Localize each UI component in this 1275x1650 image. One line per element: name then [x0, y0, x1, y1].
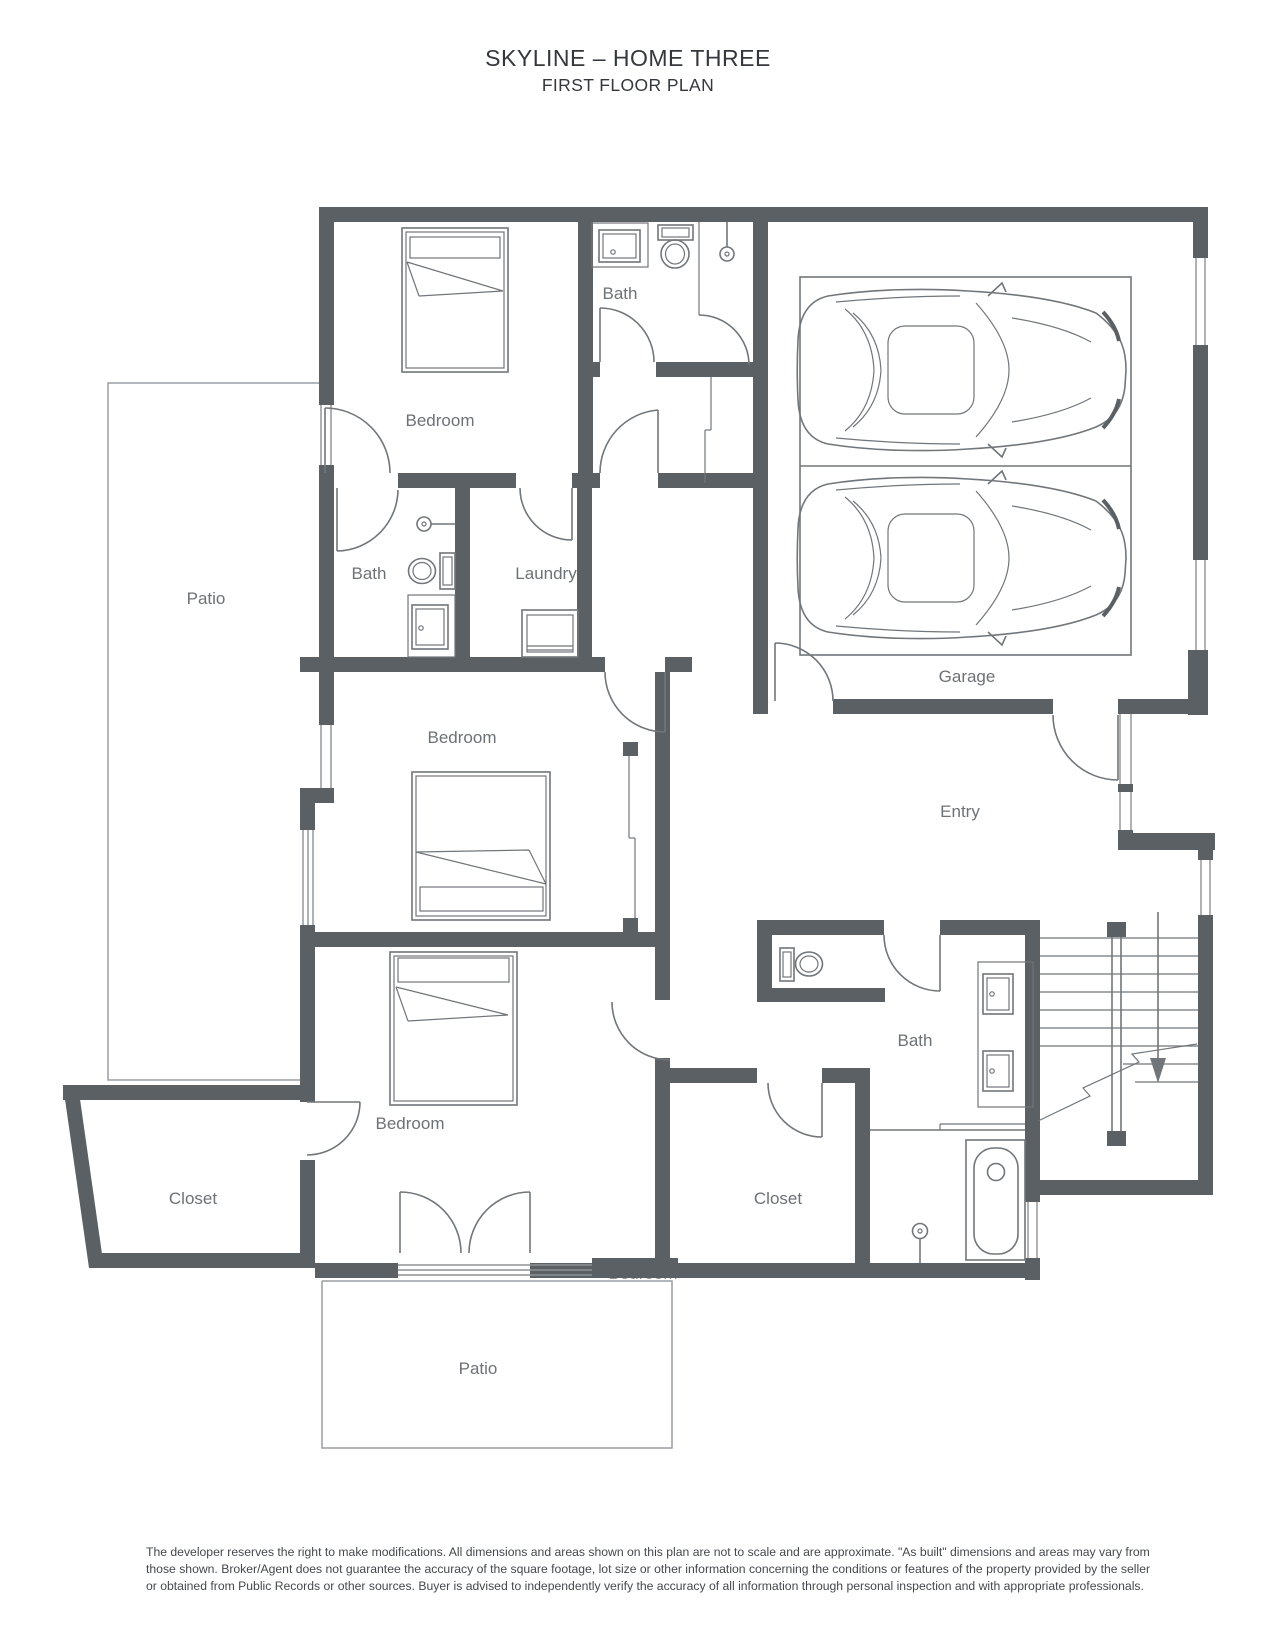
door-arc — [600, 308, 654, 362]
door-arc — [600, 410, 658, 473]
window-icon — [1193, 560, 1208, 650]
sink-icon — [978, 962, 1033, 1107]
door-arc — [337, 488, 398, 551]
garage-stalls — [800, 277, 1131, 655]
door-arc — [325, 408, 390, 473]
room-label-bath-lower: Bath — [898, 1031, 933, 1050]
sink-icon — [408, 595, 455, 657]
closet-slider-icon — [623, 742, 638, 932]
window-icon — [1025, 1202, 1040, 1258]
shower-door-arc — [699, 222, 749, 365]
floor-plan-page: SKYLINE – HOME THREE FIRST FLOOR PLAN Be… — [0, 0, 1275, 1650]
washer-icon — [522, 610, 578, 657]
room-label-patio-bottom: Patio — [459, 1359, 498, 1378]
room-label-entry: Entry — [940, 802, 980, 821]
room-label-bedroom-middle: Bedroom — [428, 728, 497, 747]
bed-icon — [402, 228, 508, 372]
window-icon — [319, 725, 334, 788]
room-label-bath-top: Bath — [603, 284, 638, 303]
door-arc — [307, 1102, 360, 1155]
room-label-closet-left: Closet — [169, 1189, 217, 1208]
bed-icon — [412, 772, 550, 920]
door-arc — [612, 1002, 670, 1060]
disclaimer-line-3: or obtained from Public Records or other… — [146, 1579, 1144, 1593]
patio-left-outline — [108, 383, 322, 1080]
room-label-bath-middle: Bath — [352, 564, 387, 583]
bathtub-icon — [966, 1140, 1025, 1260]
sliding-door-icon — [303, 830, 313, 925]
door-arc — [768, 1083, 822, 1137]
disclaimer-line-2: those shown. Broker/Agent does not guara… — [146, 1562, 1150, 1576]
french-door-icon — [400, 1192, 530, 1253]
front-door-arc — [1053, 715, 1118, 780]
entry-sidelight-icon — [1120, 714, 1131, 830]
plan-title: SKYLINE – HOME THREE — [485, 45, 771, 71]
shower-head-icon — [417, 517, 455, 531]
room-label-closet-right: Closet — [754, 1189, 802, 1208]
room-label-bedroom-lower: Bedroom — [376, 1114, 445, 1133]
sink-icon — [592, 223, 648, 267]
floor-plan-drawing: SKYLINE – HOME THREE FIRST FLOOR PLAN Be… — [0, 0, 1275, 1650]
shower-head-icon — [720, 222, 734, 261]
room-label-laundry: Laundry — [515, 564, 577, 583]
room-label-patio-left: Patio — [187, 589, 226, 608]
door-arc — [775, 643, 833, 701]
disclaimer: The developer reserves the right to make… — [146, 1545, 1150, 1593]
toilet-icon — [780, 948, 823, 981]
room-label-bedroom-top: Bedroom — [406, 411, 475, 430]
window-icon — [319, 405, 334, 465]
disclaimer-line-1: The developer reserves the right to make… — [146, 1545, 1150, 1559]
window-icon — [1198, 860, 1213, 915]
room-label-garage: Garage — [939, 667, 996, 686]
door-arc — [884, 935, 940, 991]
shower-head-icon — [913, 1224, 928, 1264]
stairs — [1038, 912, 1198, 1146]
half-wall — [870, 1124, 1025, 1130]
toilet-icon — [409, 553, 456, 589]
window-icon — [1193, 258, 1208, 345]
bed-icon — [390, 952, 517, 1105]
toilet-icon — [658, 225, 693, 268]
plan-subtitle: FIRST FLOOR PLAN — [542, 75, 714, 95]
fixture-layer — [390, 222, 1198, 1263]
pocket-door-icon — [705, 377, 711, 483]
door-arc — [520, 488, 572, 540]
